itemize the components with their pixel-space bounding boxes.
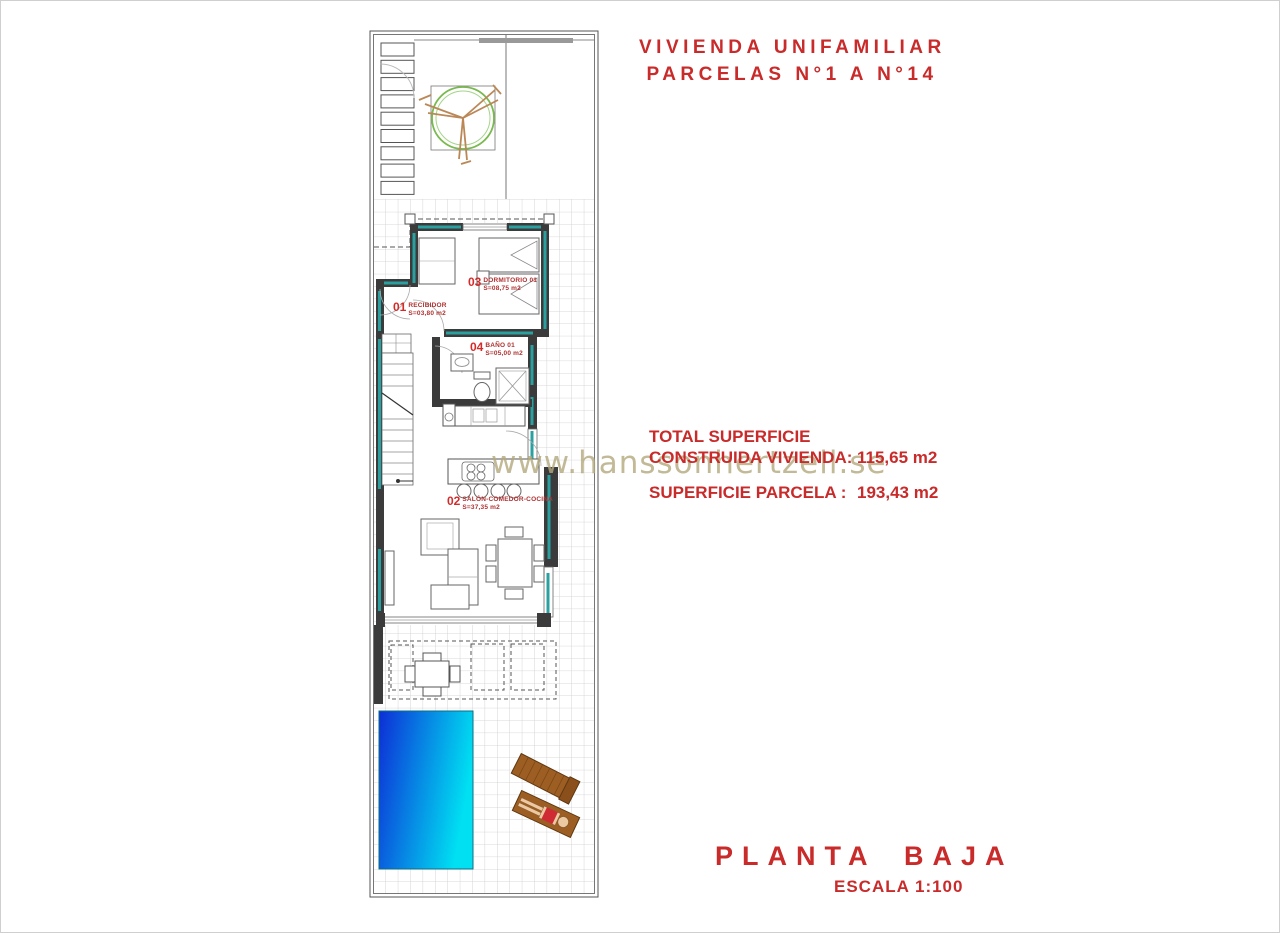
floor-plan-sheet: 01 RECIBIDOR S=03,80 m2 02 SALÓN-COMEDOR… <box>0 0 1280 933</box>
carport-slats <box>381 43 414 194</box>
bath-sink <box>455 358 469 367</box>
swimming-pool <box>379 711 473 869</box>
front-yard <box>380 35 594 199</box>
watermark: www.hanssonhertzell.se <box>491 445 887 481</box>
room-number: 04 <box>470 342 483 357</box>
kitchen-sink-bowl <box>486 409 497 422</box>
room-number: 03 <box>468 277 481 292</box>
toilet <box>474 383 490 402</box>
room-area: S=03,80 m2 <box>408 310 446 318</box>
room-name: SALÓN-COMEDOR-COCINA <box>462 496 553 504</box>
toilet-tank <box>474 372 490 379</box>
room-label-dormitorio: 03 DORMITORIO 01 S=08,75 m2 <box>468 277 537 292</box>
kitchen-sink-bowl <box>473 409 484 422</box>
room-label-salon: 02 SALÓN-COMEDOR-COCINA S=37,35 m2 <box>447 496 553 511</box>
room-area: S=37,35 m2 <box>462 504 553 512</box>
outdoor-table <box>415 661 449 687</box>
sofa-chaise <box>431 585 469 609</box>
room-label-bano: 04 BAÑO 01 S=05,00 m2 <box>470 342 523 357</box>
room-name: DORMITORIO 01 <box>483 277 537 285</box>
tv-unit <box>385 551 394 605</box>
room-name: RECIBIDOR <box>408 302 446 310</box>
stairs <box>382 334 413 485</box>
entry-gate <box>479 38 573 43</box>
room-label-recibidor: 01 RECIBIDOR S=03,80 m2 <box>393 302 447 317</box>
room-area: S=05,00 m2 <box>485 350 523 358</box>
room-area: S=08,75 m2 <box>483 285 537 293</box>
tree-icon <box>419 85 501 164</box>
room-name: BAÑO 01 <box>485 342 523 350</box>
room-number: 01 <box>393 302 406 317</box>
room-number: 02 <box>447 496 460 511</box>
